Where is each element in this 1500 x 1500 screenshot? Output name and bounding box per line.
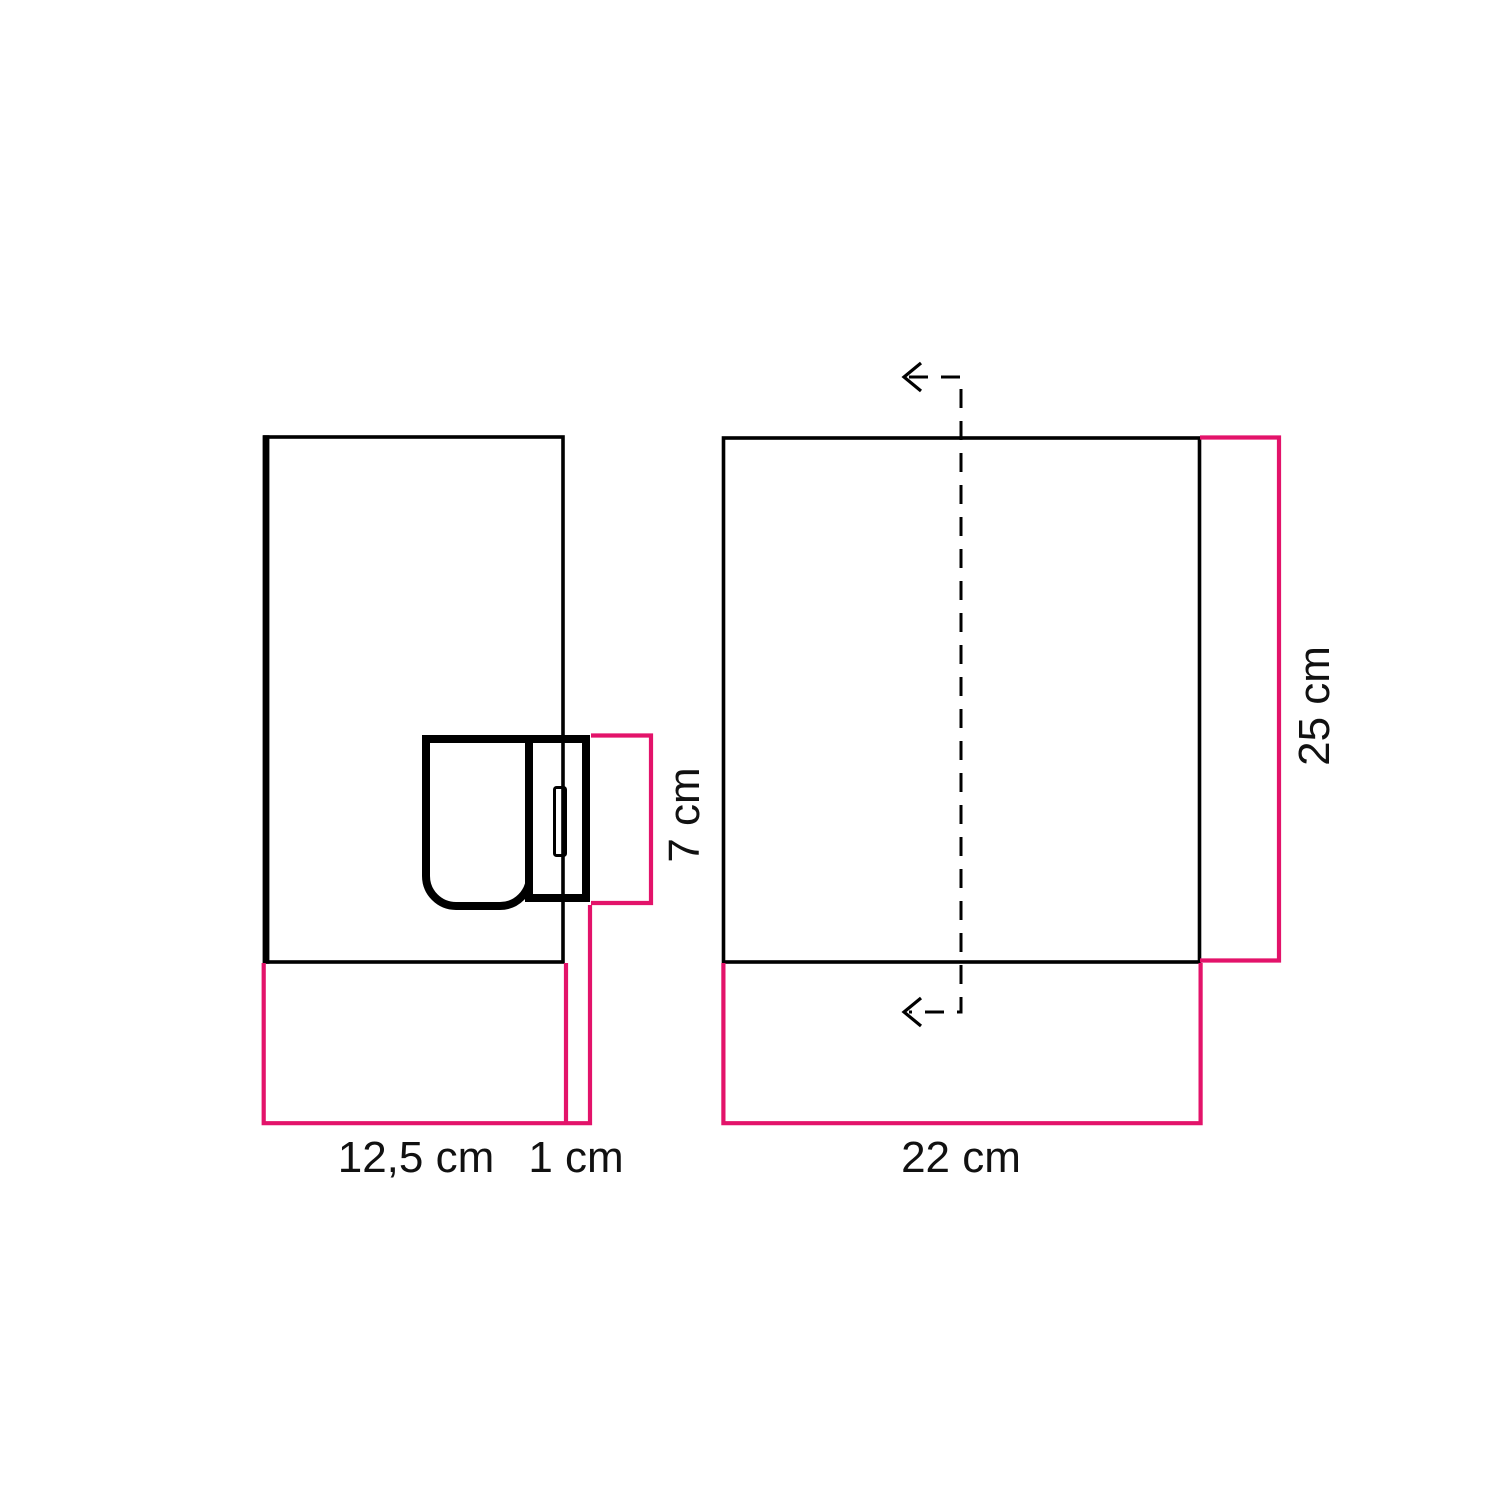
arrow-bottom-left-icon bbox=[904, 998, 921, 1026]
wall-gap-label: 1 cm bbox=[528, 1133, 623, 1182]
dimension-diagram: 12,5 cm 1 cm 7 cm 22 cm 25 cm bbox=[0, 0, 1500, 1500]
socket-height-label: 7 cm bbox=[660, 767, 709, 862]
socket-cup bbox=[426, 739, 530, 906]
side-view bbox=[265, 435, 586, 964]
dashed-centerline bbox=[909, 377, 961, 1012]
dimension-bottom-front-view bbox=[721, 963, 1202, 1123]
side-width-label: 12,5 cm bbox=[338, 1133, 495, 1182]
front-width-label: 22 cm bbox=[901, 1133, 1021, 1182]
dimension-lines bbox=[262, 438, 1279, 1124]
dimension-diagram-page: 12,5 cm 1 cm 7 cm 22 cm 25 cm bbox=[0, 0, 1500, 1500]
dimension-bracket-25cm bbox=[1200, 438, 1279, 961]
dimension-bottom-side-view bbox=[262, 905, 592, 1123]
dimension-bracket-7cm bbox=[591, 736, 651, 904]
dimension-labels: 12,5 cm 1 cm 7 cm 22 cm 25 cm bbox=[338, 646, 1339, 1182]
front-height-label: 25 cm bbox=[1290, 646, 1339, 766]
front-view bbox=[724, 363, 1200, 1026]
